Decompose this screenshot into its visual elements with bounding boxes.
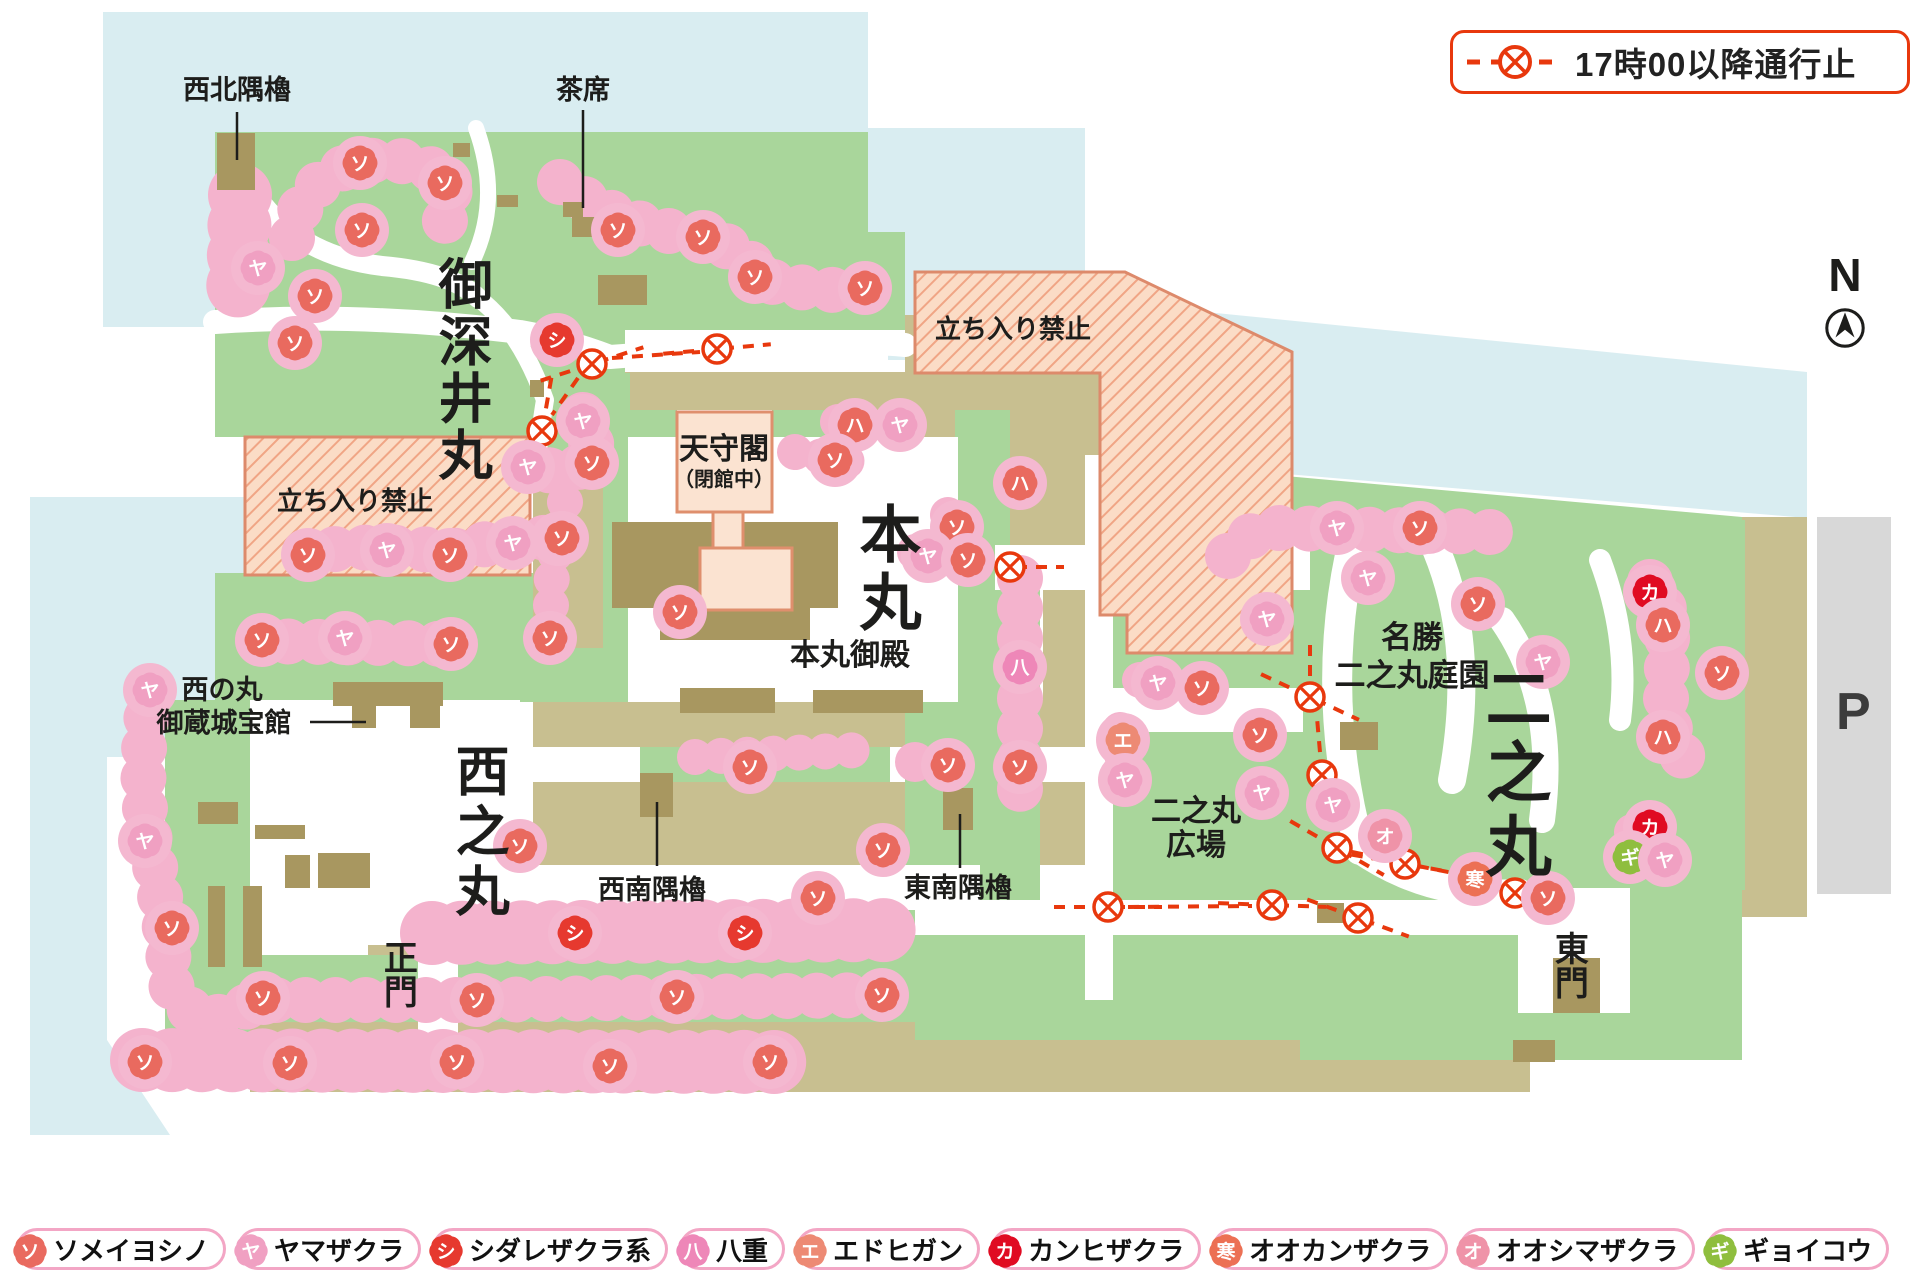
label-meisho: 名勝 — [1381, 622, 1443, 654]
label-ninomaru: 二之丸 — [1477, 664, 1546, 886]
cherry-marker-ソ: ソ — [268, 316, 322, 370]
svg-text:ヤ: ヤ — [890, 416, 909, 437]
svg-text:ソ: ソ — [1468, 595, 1487, 616]
legend-species-name: シダレザクラ系 — [469, 1231, 651, 1268]
cherry-marker-ソ: ソ — [535, 511, 589, 565]
legend-flower-icon: ヤ — [228, 1228, 274, 1274]
label-seimon: 正門 — [379, 940, 414, 1008]
cherry-marker-ソ: ソ — [235, 613, 289, 667]
cherry-marker-ハ: ハ — [1636, 710, 1690, 764]
svg-text:ソ: ソ — [467, 991, 486, 1012]
compass: N — [1810, 248, 1880, 359]
svg-text:ソ: ソ — [825, 451, 844, 472]
cherry-marker-ヤ: ヤ — [1306, 778, 1360, 832]
map-canvas: ソソソヤソソシヤソヤソソソソソヤソヤソハヤソハソソソソ八ソソソソソヤソヤソヤソソ… — [0, 0, 1920, 1287]
svg-text:ソ: ソ — [693, 228, 712, 249]
legend-flower-icon: ソ — [7, 1228, 53, 1274]
svg-text:ソ: ソ — [1410, 519, 1429, 540]
svg-text:ソ: ソ — [162, 919, 181, 940]
legend-item-エ: エエドヒガン — [796, 1228, 980, 1270]
svg-text:ソ: ソ — [1010, 758, 1029, 779]
legend-item-ギ: ギギョイコウ — [1706, 1228, 1889, 1270]
svg-text:ソ: ソ — [510, 837, 529, 858]
cherry-marker-ヤ: ヤ — [318, 611, 372, 665]
cherry-marker-ソ: ソ — [723, 740, 777, 794]
legend-flower-icon: カ — [982, 1228, 1028, 1274]
legend-flower-icon: 八 — [670, 1228, 716, 1274]
legend-item-シ: シシダレザクラ系 — [432, 1228, 668, 1270]
svg-text:ヤ: ヤ — [1148, 674, 1167, 695]
label-kura-1: 西の丸 — [182, 676, 263, 704]
svg-text:ソ: ソ — [435, 174, 454, 195]
cherry-marker-ソ: ソ — [921, 738, 975, 792]
label-tenshukaku-closed: （閉館中） — [674, 470, 774, 491]
cherry-marker-八: 八 — [993, 640, 1047, 694]
svg-text:ソ: ソ — [552, 529, 571, 550]
svg-text:ヤ: ヤ — [140, 681, 159, 702]
cherry-marker-ソ: ソ — [263, 1036, 317, 1090]
svg-text:八: 八 — [684, 1242, 704, 1263]
cherry-marker-ヤ: ヤ — [1638, 833, 1692, 887]
label-kura-2: 御蔵城宝館 — [157, 709, 292, 737]
cherry-marker-ヤ: ヤ — [1310, 501, 1364, 555]
cherry-marker-ソ: ソ — [423, 528, 477, 582]
svg-text:ヤ: ヤ — [518, 458, 537, 479]
cherry-marker-ソ: ソ — [993, 740, 1047, 794]
label-higashimon: 東門 — [1550, 931, 1585, 999]
label-tonan-yagura: 東南隅櫓 — [904, 874, 1012, 902]
cherry-marker-ソ: ソ — [653, 585, 707, 639]
svg-text:エ: エ — [1113, 731, 1132, 752]
cherry-marker-ヤ: ヤ — [118, 814, 172, 868]
cherry-marker-ソ: ソ — [650, 970, 704, 1024]
closure-notice: 17時00以降通行止 — [1450, 30, 1910, 94]
svg-text:ヤ: ヤ — [1323, 796, 1342, 817]
legend-flower-icon: オ — [1450, 1228, 1496, 1274]
cherry-marker-ソ: ソ — [145, 901, 199, 955]
cherry-marker-シ: シ — [718, 906, 772, 960]
svg-text:ヤ: ヤ — [1327, 519, 1346, 540]
svg-text:ソ: ソ — [808, 889, 827, 910]
cherry-marker-ソ: ソ — [791, 871, 845, 925]
legend-species-name: ギョイコウ — [1743, 1231, 1872, 1268]
legend-flower-icon: エ — [787, 1228, 833, 1274]
cherry-marker-ソ: ソ — [808, 433, 862, 487]
svg-text:ソ: ソ — [20, 1242, 39, 1263]
cherry-marker-ヤ: ヤ — [1240, 592, 1294, 646]
svg-text:ソ: ソ — [440, 546, 459, 567]
svg-text:ソ: ソ — [740, 758, 759, 779]
cherry-marker-ソ: ソ — [1233, 708, 1287, 762]
svg-text:エ: エ — [801, 1242, 820, 1263]
cherry-marker-ソ: ソ — [855, 968, 909, 1022]
cherry-marker-ソ: ソ — [728, 250, 782, 304]
svg-text:ヤ: ヤ — [1252, 784, 1271, 805]
svg-text:八: 八 — [1010, 658, 1030, 679]
svg-text:ヤ: ヤ — [248, 259, 267, 280]
cherry-marker-ハ: ハ — [993, 456, 1047, 510]
cherry-marker-ソ: ソ — [838, 261, 892, 315]
legend-species-name: ソメイヨシノ — [53, 1231, 209, 1268]
cherry-marker-ソ: ソ — [1451, 577, 1505, 631]
svg-text:ソ: ソ — [1712, 664, 1731, 685]
cherry-marker-シ: シ — [548, 906, 602, 960]
compass-icon — [1819, 302, 1871, 354]
cherry-marker-ソ: ソ — [583, 1039, 637, 1093]
tonan-yagura-building — [943, 788, 973, 830]
legend-species-name: オオシマザクラ — [1496, 1231, 1678, 1268]
cherry-marker-ヤ: ヤ — [873, 398, 927, 452]
svg-text:ソ: ソ — [608, 221, 627, 242]
svg-text:ヤ: ヤ — [377, 541, 396, 562]
svg-text:オ: オ — [1464, 1242, 1483, 1263]
cherry-marker-ヤ: ヤ — [1235, 766, 1289, 820]
svg-text:ヤ: ヤ — [1115, 771, 1134, 792]
legend-item-ヤ: ヤヤマザクラ — [237, 1228, 421, 1270]
label-seinan-yagura: 西南隅櫓 — [598, 876, 706, 904]
svg-text:ソ: ソ — [667, 988, 686, 1009]
legend-item-オ: オオオシマザクラ — [1459, 1228, 1695, 1270]
label-hiroba-1: 二之丸 — [1151, 796, 1241, 827]
cherry-marker-ソ: ソ — [856, 823, 910, 877]
svg-text:ヤ: ヤ — [1655, 851, 1674, 872]
svg-text:ソ: ソ — [285, 334, 304, 355]
svg-text:ソ: ソ — [873, 841, 892, 862]
legend-species-name: ヤマザクラ — [274, 1231, 404, 1268]
label-nishinomaru: 西之丸 — [449, 743, 505, 923]
svg-text:寒: 寒 — [1217, 1240, 1236, 1263]
svg-text:ソ: ソ — [447, 1053, 466, 1074]
cherry-marker-ヤ: ヤ — [501, 440, 555, 494]
legend-species-name: オオカンザクラ — [1249, 1231, 1431, 1268]
label-chaseki: 茶席 — [556, 76, 610, 104]
svg-text:ソ: ソ — [252, 631, 271, 652]
cherry-marker-ソ: ソ — [450, 973, 504, 1027]
svg-text:ソ: ソ — [600, 1057, 619, 1078]
cherry-marker-ソ: ソ — [118, 1035, 172, 1089]
svg-text:ヤ: ヤ — [573, 412, 592, 433]
cherry-marker-ソ: ソ — [1695, 646, 1749, 700]
svg-text:ソ: ソ — [441, 635, 460, 656]
chaseki-building — [563, 202, 583, 217]
legend-item-カ: カカンヒザクラ — [991, 1228, 1201, 1270]
svg-text:ヤ: ヤ — [918, 547, 937, 568]
svg-text:ソ: ソ — [855, 279, 874, 300]
svg-text:シ: シ — [565, 924, 584, 945]
svg-text:ヤ: ヤ — [503, 534, 522, 555]
svg-text:ソ: ソ — [745, 268, 764, 289]
label-tenshukaku: 天守閣 — [679, 434, 769, 465]
svg-text:シ: シ — [735, 924, 754, 945]
svg-text:シ: シ — [437, 1242, 456, 1263]
svg-text:ソ: ソ — [135, 1053, 154, 1074]
svg-text:ハ: ハ — [1010, 474, 1029, 495]
cherry-marker-ソ: ソ — [333, 136, 387, 190]
legend-item-寒: 寒オオカンザクラ — [1212, 1228, 1448, 1270]
svg-text:ソ: ソ — [872, 986, 891, 1007]
label-hiroba-2: 広場 — [1166, 830, 1226, 861]
svg-text:ギ: ギ — [1620, 847, 1639, 869]
cherry-marker-ハ: ハ — [1636, 598, 1690, 652]
label-honmaru-goten: 本丸御殿 — [790, 640, 910, 671]
legend-species-name: 八重 — [716, 1231, 768, 1268]
legend-flower-icon: シ — [423, 1228, 469, 1274]
svg-text:ハ: ハ — [1653, 616, 1672, 637]
label-seihoku-yagura: 西北隅櫓 — [183, 76, 291, 104]
svg-text:ソ: ソ — [298, 546, 317, 567]
cherry-marker-ソ: ソ — [523, 611, 577, 665]
svg-text:シ: シ — [547, 331, 566, 352]
cherry-marker-ソ: ソ — [288, 269, 342, 323]
svg-text:ソ: ソ — [253, 989, 272, 1010]
cherry-marker-ソ: ソ — [1393, 501, 1447, 555]
svg-text:ヤ: ヤ — [1257, 610, 1276, 631]
svg-text:ヤ: ヤ — [335, 629, 354, 650]
cherry-marker-ソ: ソ — [430, 1035, 484, 1089]
cherry-marker-ソ: ソ — [941, 533, 995, 587]
legend-species-name: カンヒザクラ — [1028, 1231, 1184, 1268]
legend-flower-icon: 寒 — [1203, 1228, 1249, 1274]
svg-text:ヤ: ヤ — [135, 832, 154, 853]
svg-text:ソ: ソ — [280, 1054, 299, 1075]
cherry-marker-オ: オ — [1358, 809, 1412, 863]
cherry-marker-ソ: ソ — [418, 156, 472, 210]
svg-text:ソ: ソ — [670, 603, 689, 624]
svg-text:ソ: ソ — [958, 551, 977, 572]
svg-text:ソ: ソ — [938, 756, 957, 777]
legend-item-ソ: ソソメイヨシノ — [16, 1228, 226, 1270]
svg-text:オ: オ — [1375, 827, 1394, 848]
cherry-marker-ソ: ソ — [236, 971, 290, 1025]
closure-notice-text: 17時00以降通行止 — [1575, 38, 1856, 86]
cherry-marker-ソ: ソ — [335, 203, 389, 257]
cherry-marker-ヤ: ヤ — [360, 523, 414, 577]
svg-text:カ: カ — [996, 1241, 1015, 1263]
label-no-entry-west: 立ち入り禁止 — [277, 488, 433, 515]
cherry-marker-シ: シ — [530, 313, 584, 367]
species-legend: ソソメイヨシノヤヤマザクラシシダレザクラ系八八重エエドヒガンカカンヒザクラ寒オオ… — [16, 1228, 1889, 1270]
legend-item-八: 八八重 — [679, 1228, 785, 1270]
svg-text:ハ: ハ — [845, 416, 864, 437]
svg-text:ソ: ソ — [1538, 889, 1557, 910]
svg-text:ソ: ソ — [760, 1053, 779, 1074]
label-ninomaru-teien: 二之丸庭園 — [1335, 660, 1490, 692]
cherry-marker-ヤ: ヤ — [231, 241, 285, 295]
svg-text:ヤ: ヤ — [242, 1242, 261, 1263]
legend-species-name: エドヒガン — [833, 1231, 963, 1268]
svg-text:ソ: ソ — [352, 221, 371, 242]
closure-gate-icon — [1463, 43, 1567, 81]
cherry-marker-ソ: ソ — [565, 436, 619, 490]
cherry-marker-ソ: ソ — [1175, 661, 1229, 715]
cherry-marker-ソ: ソ — [743, 1035, 797, 1089]
svg-text:ソ: ソ — [305, 287, 324, 308]
kura-johokan-building — [333, 682, 443, 706]
cherry-marker-ソ: ソ — [424, 617, 478, 671]
parking-label: P — [1836, 682, 1871, 742]
cherry-marker-ソ: ソ — [591, 203, 645, 257]
label-honmaru: 本丸 — [851, 502, 915, 638]
svg-text:ソ: ソ — [350, 154, 369, 175]
legend-flower-icon: ギ — [1697, 1228, 1743, 1274]
svg-text:ソ: ソ — [1250, 726, 1269, 747]
svg-text:ヤ: ヤ — [1358, 569, 1377, 590]
cherry-marker-ソ: ソ — [281, 528, 335, 582]
svg-text:ソ: ソ — [540, 629, 559, 650]
cherry-marker-ソ: ソ — [676, 210, 730, 264]
svg-text:ギ: ギ — [1711, 1241, 1730, 1263]
svg-text:ソ: ソ — [582, 454, 601, 475]
label-ofukemaru: 御深井丸 — [432, 256, 488, 484]
cherry-marker-ヤ: ヤ — [1098, 753, 1152, 807]
svg-text:ソ: ソ — [1192, 679, 1211, 700]
compass-n-label: N — [1810, 248, 1880, 302]
label-no-entry-east: 立ち入り禁止 — [935, 316, 1091, 343]
cherry-marker-ヤ: ヤ — [1341, 551, 1395, 605]
svg-text:ハ: ハ — [1653, 728, 1672, 749]
castle-sakura-map: ソソソヤソソシヤソヤソソソソソヤソヤソハヤソハソソソソ八ソソソソソヤソヤソヤソソ… — [0, 0, 1920, 1287]
